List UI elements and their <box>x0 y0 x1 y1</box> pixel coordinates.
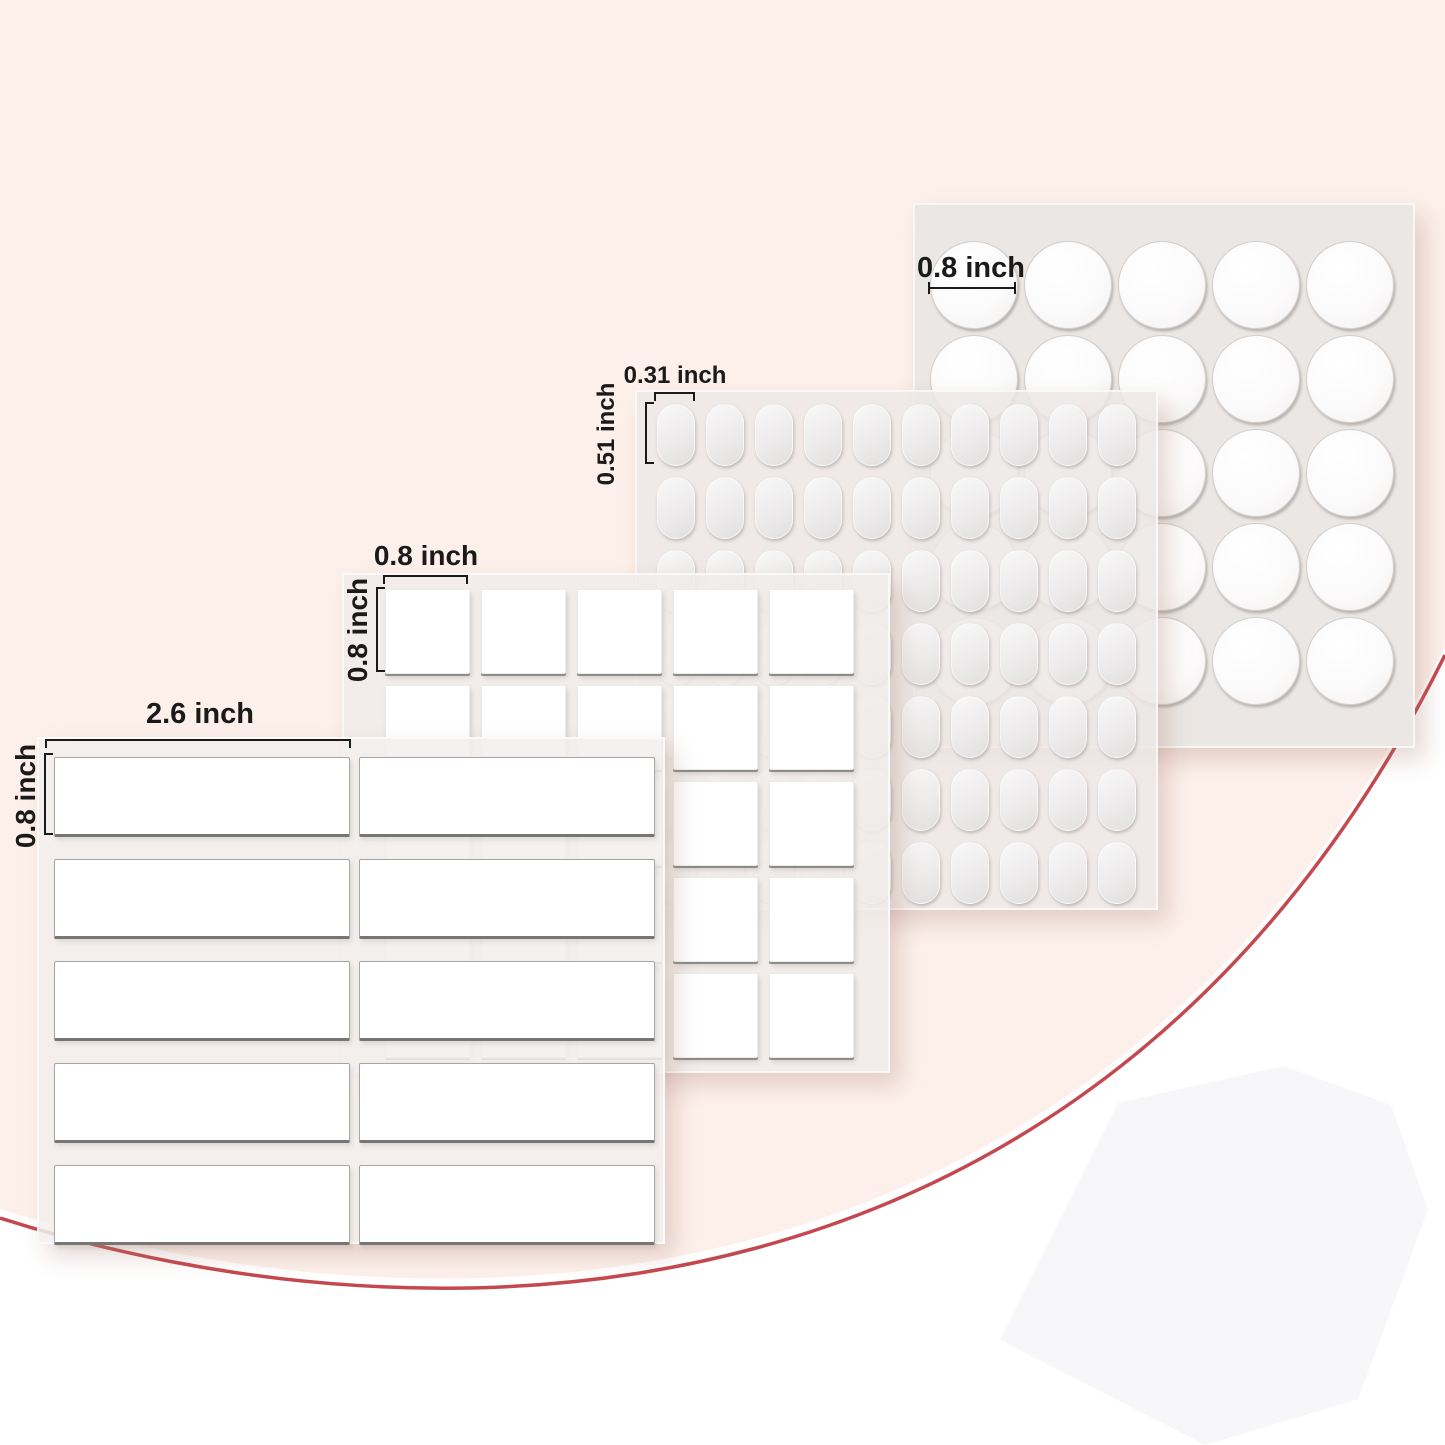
oval-sticker <box>1000 404 1038 466</box>
square-sticker <box>769 877 854 962</box>
rectangle-width-label: 2.6 inch <box>100 698 300 731</box>
oval-sticker <box>951 842 989 904</box>
oval-sticker <box>902 623 940 685</box>
oval-sticker <box>1098 842 1136 904</box>
oval-sticker <box>951 623 989 685</box>
oval-sticker <box>951 477 989 539</box>
oval-sticker <box>1000 842 1038 904</box>
oval-sticker <box>1049 696 1087 758</box>
round-sticker <box>1212 429 1300 517</box>
square-height-bracket <box>376 587 378 672</box>
square-sticker <box>769 973 854 1058</box>
oval-sticker <box>1049 623 1087 685</box>
oval-sticker <box>804 404 842 466</box>
oval-sticker <box>951 769 989 831</box>
oval-sticker <box>1098 769 1136 831</box>
square-height-label: 0.8 inch <box>342 550 374 710</box>
oval-sticker <box>706 404 744 466</box>
round-sticker <box>1212 335 1300 423</box>
oval-sticker <box>657 404 695 466</box>
oval-sticker <box>1049 769 1087 831</box>
round-sticker <box>1212 241 1300 329</box>
rectangle-sticker-grid <box>54 757 655 1245</box>
oval-sticker <box>1000 696 1038 758</box>
round-sticker <box>1306 241 1394 329</box>
oval-sticker <box>902 696 940 758</box>
rectangle-sticker <box>359 757 655 837</box>
oval-sticker <box>755 477 793 539</box>
rectangle-sticker <box>359 1165 655 1245</box>
square-sticker <box>769 781 854 866</box>
oval-sticker <box>902 769 940 831</box>
product-dimension-diagram: 0.8 inch 0.31 inch 0.51 inch 0.8 inch 0.… <box>0 0 1445 1445</box>
round-sticker <box>1306 617 1394 705</box>
square-sticker <box>673 685 758 770</box>
rectangle-sticker <box>359 1063 655 1143</box>
oval-sticker <box>1049 842 1087 904</box>
rectangle-height-label: 0.8 inch <box>10 716 42 876</box>
oval-sticker <box>1098 404 1136 466</box>
oval-sticker <box>1098 696 1136 758</box>
oval-height-label: 0.51 inch <box>593 354 621 514</box>
round-sticker <box>1306 429 1394 517</box>
round-width-label: 0.8 inch <box>871 252 1071 285</box>
square-sticker <box>769 685 854 770</box>
square-width-bracket <box>383 575 468 577</box>
square-sticker <box>769 589 854 674</box>
square-sticker <box>577 589 662 674</box>
square-sticker <box>673 973 758 1058</box>
oval-sticker <box>951 404 989 466</box>
oval-sticker <box>1000 477 1038 539</box>
rectangle-sticker <box>54 859 350 939</box>
oval-sticker <box>1000 623 1038 685</box>
oval-sticker <box>1000 550 1038 612</box>
round-sticker <box>1306 335 1394 423</box>
rectangle-sticker <box>54 1063 350 1143</box>
heptagon-watermark <box>1000 1066 1428 1445</box>
square-sticker <box>481 589 566 674</box>
oval-width-bracket <box>654 392 695 394</box>
oval-sticker <box>755 404 793 466</box>
round-sticker <box>1212 617 1300 705</box>
rectangle-sticker <box>359 961 655 1041</box>
square-sticker <box>673 589 758 674</box>
oval-sticker <box>804 477 842 539</box>
oval-sticker <box>1049 550 1087 612</box>
sticker-sheet-rectangle <box>37 737 665 1244</box>
oval-sticker <box>1098 623 1136 685</box>
square-sticker <box>673 877 758 962</box>
oval-sticker <box>1098 550 1136 612</box>
round-sticker <box>1118 241 1206 329</box>
rectangle-width-bracket <box>45 739 351 741</box>
oval-sticker <box>1000 769 1038 831</box>
square-sticker <box>385 589 470 674</box>
rectangle-sticker <box>54 1165 350 1245</box>
oval-sticker <box>902 550 940 612</box>
oval-height-bracket <box>645 402 647 464</box>
oval-sticker <box>951 696 989 758</box>
round-width-measure-line <box>928 287 1016 289</box>
rectangle-sticker <box>54 757 350 837</box>
oval-sticker <box>951 550 989 612</box>
rectangle-height-bracket <box>44 753 46 835</box>
oval-sticker <box>706 477 744 539</box>
square-sticker <box>673 781 758 866</box>
round-sticker <box>1212 523 1300 611</box>
round-sticker <box>1306 523 1394 611</box>
oval-sticker <box>902 842 940 904</box>
oval-sticker <box>1098 477 1136 539</box>
oval-sticker <box>902 477 940 539</box>
rectangle-sticker <box>54 961 350 1041</box>
oval-sticker <box>1049 477 1087 539</box>
oval-sticker <box>853 477 891 539</box>
oval-sticker <box>657 477 695 539</box>
oval-sticker <box>1049 404 1087 466</box>
rectangle-sticker <box>359 859 655 939</box>
oval-sticker <box>853 404 891 466</box>
oval-sticker <box>902 404 940 466</box>
